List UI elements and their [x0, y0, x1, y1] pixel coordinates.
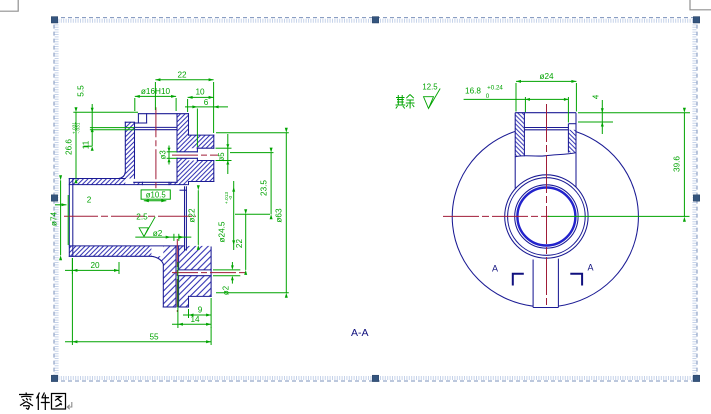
- svg-text:5.5: 5.5: [77, 85, 86, 97]
- svg-text:12.5: 12.5: [422, 83, 438, 92]
- svg-text:-.031: -.031: [76, 122, 82, 133]
- svg-text:10: 10: [195, 88, 205, 97]
- svg-text:2.5: 2.5: [136, 213, 148, 222]
- svg-text:ø2: ø2: [222, 286, 231, 295]
- svg-text:0: 0: [486, 93, 490, 100]
- svg-text:ø74: ø74: [50, 211, 59, 226]
- svg-text:A: A: [588, 263, 594, 273]
- svg-text:16.8: 16.8: [465, 87, 481, 96]
- svg-text:14: 14: [190, 315, 200, 324]
- svg-text:11: 11: [82, 140, 91, 149]
- svg-text:26.6: 26.6: [65, 139, 74, 155]
- svg-text:ø16H10: ø16H10: [141, 87, 171, 96]
- svg-text:ø10.5: ø10.5: [146, 190, 167, 199]
- svg-text:22: 22: [235, 239, 244, 249]
- svg-text:ø63: ø63: [275, 208, 284, 223]
- svg-text:22: 22: [177, 71, 187, 80]
- svg-text:ø3: ø3: [159, 150, 168, 159]
- svg-text:ø24.5: ø24.5: [217, 221, 226, 242]
- svg-text:39.6: 39.6: [673, 156, 682, 172]
- svg-text:9: 9: [198, 306, 203, 315]
- svg-text:-0: -0: [228, 196, 234, 201]
- svg-text:A: A: [492, 264, 498, 274]
- svg-text:20: 20: [90, 261, 100, 270]
- svg-text:A-A: A-A: [351, 327, 369, 339]
- svg-text:4: 4: [592, 94, 601, 99]
- svg-text:6: 6: [204, 98, 209, 107]
- svg-text:55: 55: [149, 333, 159, 342]
- svg-text:23.5: 23.5: [259, 180, 268, 196]
- svg-text:ø22: ø22: [187, 208, 196, 223]
- svg-text:2: 2: [87, 196, 92, 205]
- svg-text:ø24: ø24: [539, 72, 554, 81]
- svg-text:+0.24: +0.24: [487, 85, 503, 92]
